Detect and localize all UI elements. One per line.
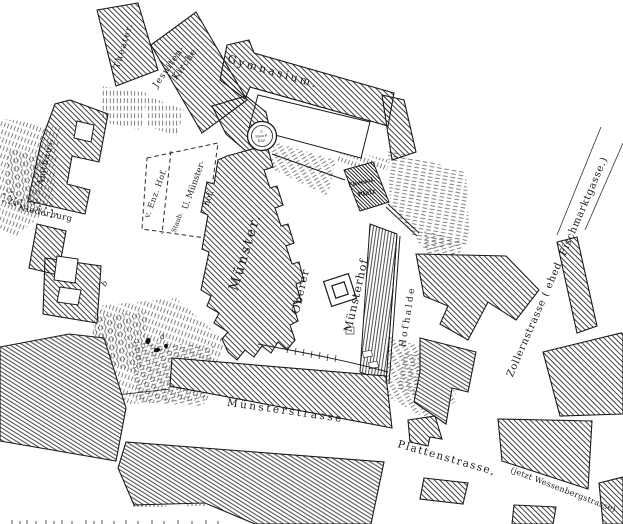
building-southwest-block xyxy=(0,334,126,461)
historic-city-plan: S. Maurit. Kap. Theater. Jesuiten- Kirch… xyxy=(0,0,623,524)
marker-a: a xyxy=(160,332,165,341)
building-platten-south-1 xyxy=(420,478,468,504)
building-platten-south-2 xyxy=(512,505,556,524)
map-canvas: S. Maurit. Kap. Theater. Jesuiten- Kirch… xyxy=(0,0,623,524)
mauritius-chapel-rotunda: S. Maurit. Kap. xyxy=(248,122,277,151)
building-left-block-2 xyxy=(43,256,101,323)
